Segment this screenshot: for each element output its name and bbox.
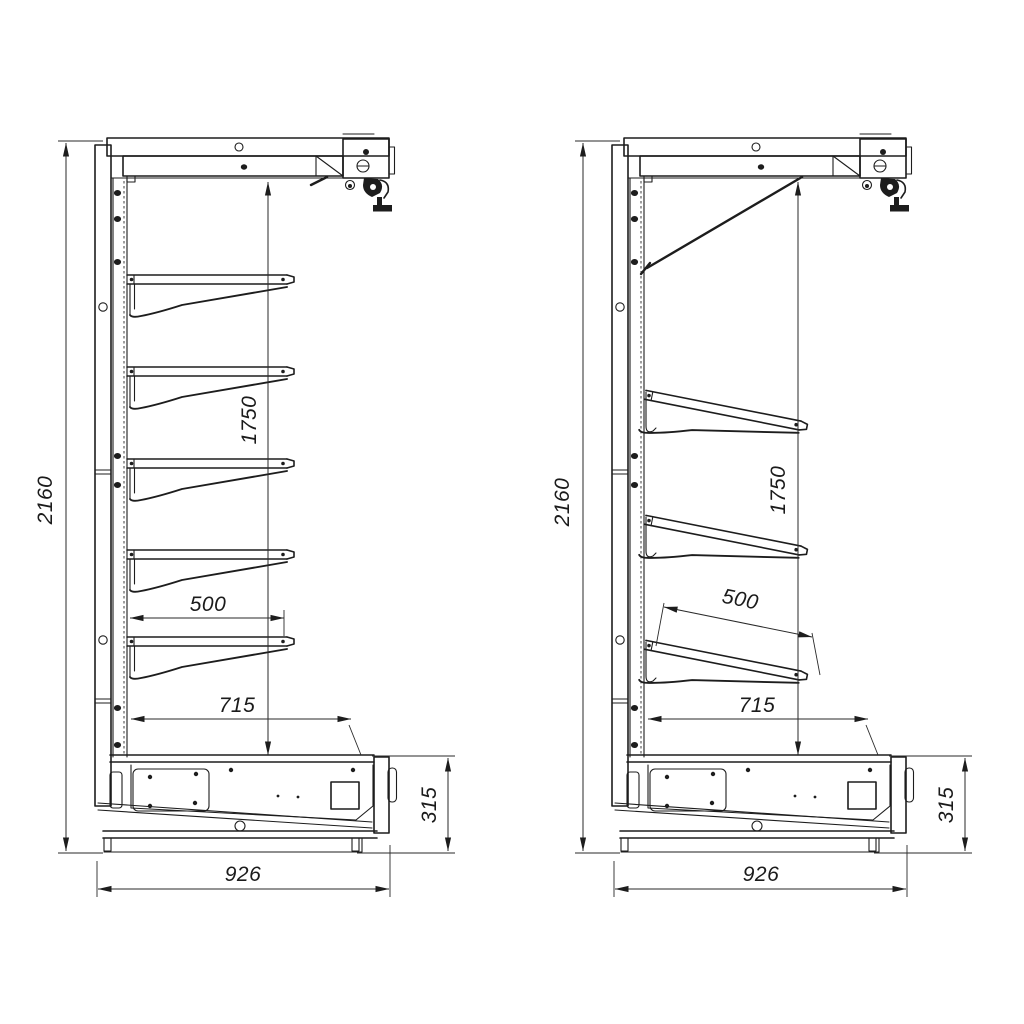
left-shelf-3 — [127, 459, 294, 501]
dim-label-overall-depth-left: 926 — [225, 863, 262, 886]
left-shelf-4 — [127, 550, 294, 592]
left-shelf-2 — [127, 367, 294, 409]
right-curtain-handle — [641, 263, 650, 274]
left-base — [98, 755, 397, 852]
left-canopy — [107, 134, 395, 212]
dim-label-base-height-right: 315 — [935, 787, 958, 824]
left-dimension-lines — [58, 141, 455, 897]
right-shelf-1 — [638, 390, 808, 463]
right-base — [615, 755, 914, 852]
dim-label-overall-height-right: 2160 — [551, 478, 574, 528]
right-night-curtain-brace — [647, 177, 802, 268]
dim-label-overall-height-left: 2160 — [34, 476, 57, 526]
dim-label-shelf-zone-right: 1750 — [767, 466, 790, 515]
right-dimension-lines — [575, 141, 972, 897]
right-canopy — [624, 134, 912, 212]
dim-label-shelf-zone-left: 1750 — [238, 396, 261, 445]
technical-drawing-page: 2160 1750 500 715 315 926 2160 1750 500 … — [0, 0, 1024, 1024]
dim-label-shelf-depth-right: 500 — [720, 585, 760, 615]
right-dim-shelf-depth — [656, 603, 820, 675]
left-view-horizontal-shelves: 2160 1750 500 715 315 926 — [34, 134, 455, 897]
dim-label-overall-depth-right: 926 — [743, 863, 780, 886]
left-post — [95, 145, 127, 806]
left-shelf-5 — [127, 637, 294, 679]
right-post — [612, 145, 644, 806]
dim-label-base-top-depth-left: 715 — [219, 694, 256, 717]
left-shelf-1 — [127, 275, 294, 317]
dim-label-base-height-left: 315 — [418, 787, 441, 824]
right-view-inclined-shelves: 2160 1750 500 715 315 926 — [551, 134, 972, 897]
right-shelf-2 — [638, 515, 808, 588]
dim-label-shelf-depth-left: 500 — [190, 593, 227, 616]
dim-label-base-top-depth-right: 715 — [739, 694, 776, 717]
technical-drawing-canvas: 2160 1750 500 715 315 926 2160 1750 500 … — [0, 0, 1024, 1024]
right-shelf-3 — [638, 640, 808, 713]
